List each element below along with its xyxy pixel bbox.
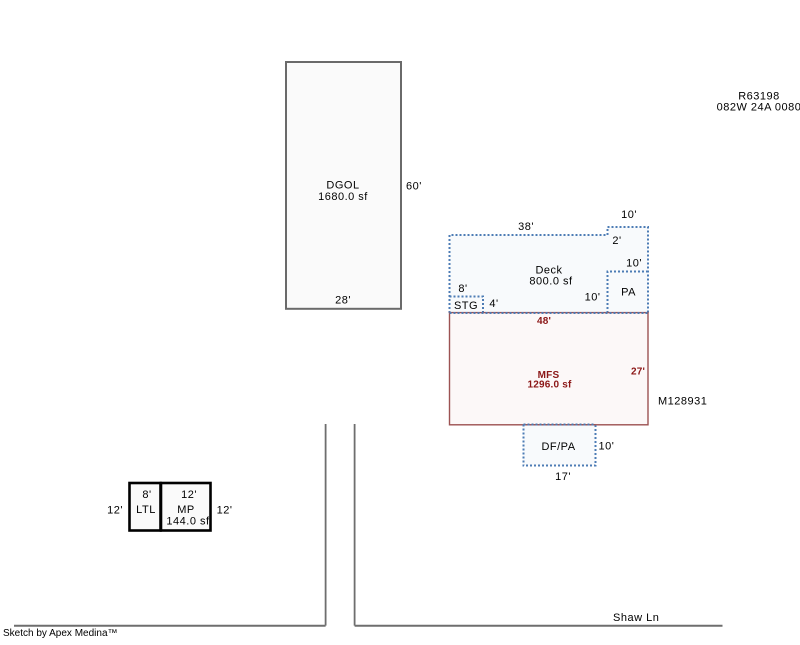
svg-text:12': 12' (181, 489, 197, 501)
svg-text:10': 10' (599, 441, 615, 453)
svg-text:082W 24A 0080: 082W 24A 0080 (717, 102, 800, 114)
svg-text:DGOL: DGOL (326, 180, 359, 192)
svg-text:12': 12' (217, 505, 233, 517)
svg-text:1296.0 sf: 1296.0 sf (527, 380, 572, 391)
svg-text:10': 10' (621, 209, 637, 221)
svg-text:4': 4' (489, 298, 498, 310)
svg-text:38': 38' (518, 221, 534, 233)
svg-text:2': 2' (612, 235, 621, 247)
svg-text:DF/PA: DF/PA (541, 441, 575, 453)
svg-text:8': 8' (458, 283, 467, 295)
svg-text:27': 27' (631, 367, 645, 378)
svg-text:48': 48' (537, 316, 551, 327)
svg-text:M128931: M128931 (658, 396, 707, 408)
svg-text:Shaw Ln: Shaw Ln (613, 612, 659, 624)
svg-text:10': 10' (585, 292, 601, 304)
svg-text:60': 60' (406, 181, 422, 193)
svg-text:8': 8' (142, 489, 151, 501)
svg-text:MP: MP (177, 504, 195, 516)
svg-text:144.0 sf: 144.0 sf (166, 516, 210, 528)
svg-text:12': 12' (107, 505, 123, 517)
svg-text:PA: PA (621, 287, 636, 299)
svg-text:17': 17' (555, 471, 571, 483)
svg-text:LTL: LTL (136, 504, 156, 516)
svg-text:800.0 sf: 800.0 sf (529, 276, 573, 288)
svg-text:Sketch by Apex Medina™: Sketch by Apex Medina™ (3, 628, 118, 639)
svg-text:1680.0 sf: 1680.0 sf (318, 191, 368, 203)
svg-text:STG: STG (454, 300, 478, 312)
svg-text:10': 10' (626, 258, 642, 270)
svg-text:28': 28' (335, 295, 351, 307)
